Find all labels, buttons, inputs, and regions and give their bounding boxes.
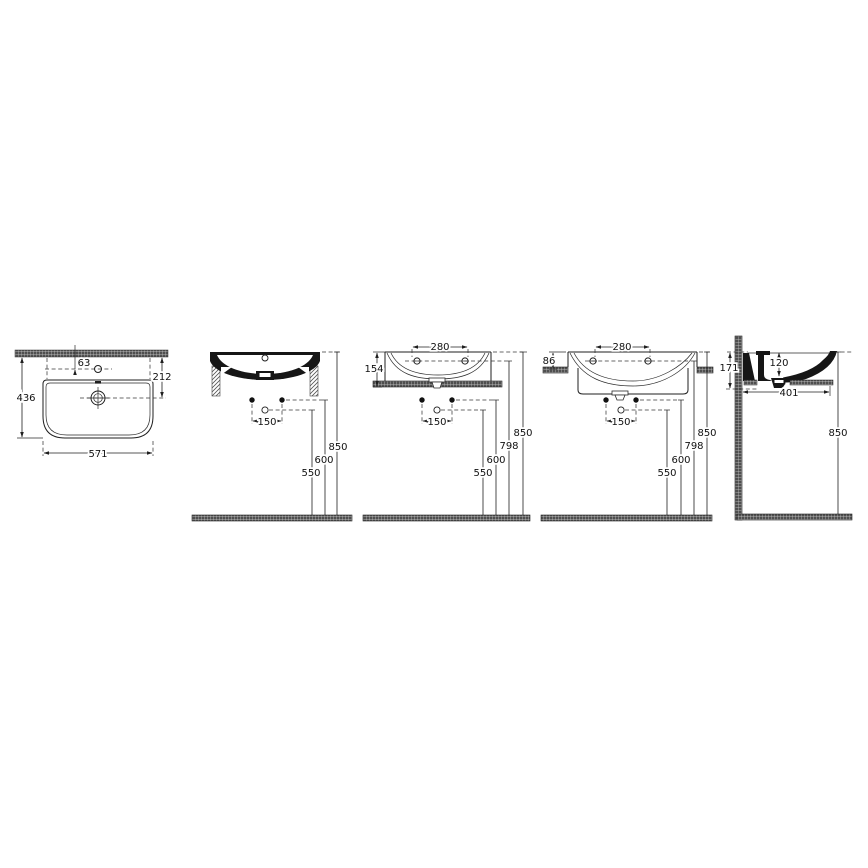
semirecessed-hole-spacing-label: 150 [611,417,630,428]
section-bowl-depth-label: 120 [769,358,788,369]
semirecessed-tap-spacing-label: 280 [612,342,631,353]
fixing-hole-right [633,397,638,402]
counter-counter-height-label: 798 [499,441,518,452]
fixing-hole-left [603,397,608,402]
plan-drain-offset-label: 212 [152,372,171,383]
plan-depth-label: 436 [16,393,35,404]
siphon-outlet [262,407,268,413]
counter-tap-spacing-label: 280 [430,342,449,353]
siphon-outlet [618,407,624,413]
counter-rim-height-label: 850 [513,428,532,439]
fixing-hole-left [419,397,424,402]
plan-width-label: 571 [88,449,107,460]
section-projection-label: 401 [779,388,798,399]
counter-body-height-label: 154 [364,364,383,375]
semirecessed-counter-height-label: 798 [684,441,703,452]
countertop-right-section [697,367,713,373]
fixing-hole-right [449,397,454,402]
fixing-hole-right [279,397,284,402]
counter-strip-right [790,380,833,385]
semirecessed-siphon-height-label: 550 [657,468,676,479]
semirecessed-fixing-height-label: 600 [671,455,690,466]
wallhung-siphon-height-label: 550 [301,468,320,479]
semirecessed-above-counter-label: 86 [543,356,556,367]
counter-hole-spacing-label: 150 [427,417,446,428]
fixing-hole-left [249,397,254,402]
view-plan: 63 212 436 571 [15,345,172,460]
siphon-outlet [434,407,440,413]
wallhung-rim-height-label: 850 [328,442,347,453]
wallhung-hole-spacing-label: 150 [257,417,276,428]
section-body-height-label: 171 [719,363,738,374]
floor-section [363,515,530,521]
counter-fixing-height-label: 600 [486,455,505,466]
bracket-right [310,366,318,396]
view-semi-recessed: 280 86 150 550 600 798 850 [541,342,717,521]
wall-section [15,350,168,357]
overflow-slot [95,381,101,384]
bracket-left [212,366,220,396]
floor-section [737,514,852,520]
view-side-section: 120 171 401 850 [719,336,852,520]
plan-faucet-offset-label: 63 [78,358,91,369]
floor-section [541,515,712,521]
basin-front-silhouette [210,352,320,380]
view-wall-hung: 150 550 600 850 [192,352,352,521]
view-counter-top: 280 154 150 550 600 798 850 [363,342,533,521]
overflow-hole [262,355,268,361]
section-rim-height-label: 850 [828,428,847,439]
washbasin-technical-drawing: 63 212 436 571 [0,0,868,868]
countertop-left-section [543,367,568,373]
semirecessed-rim-height-label: 850 [697,428,716,439]
counter-strip-left [744,380,757,385]
drawing-canvas: 63 212 436 571 [0,0,868,868]
counter-siphon-height-label: 550 [473,468,492,479]
floor-section [192,515,352,521]
basin-outline [568,352,697,400]
wallhung-fixing-height-label: 600 [314,455,333,466]
